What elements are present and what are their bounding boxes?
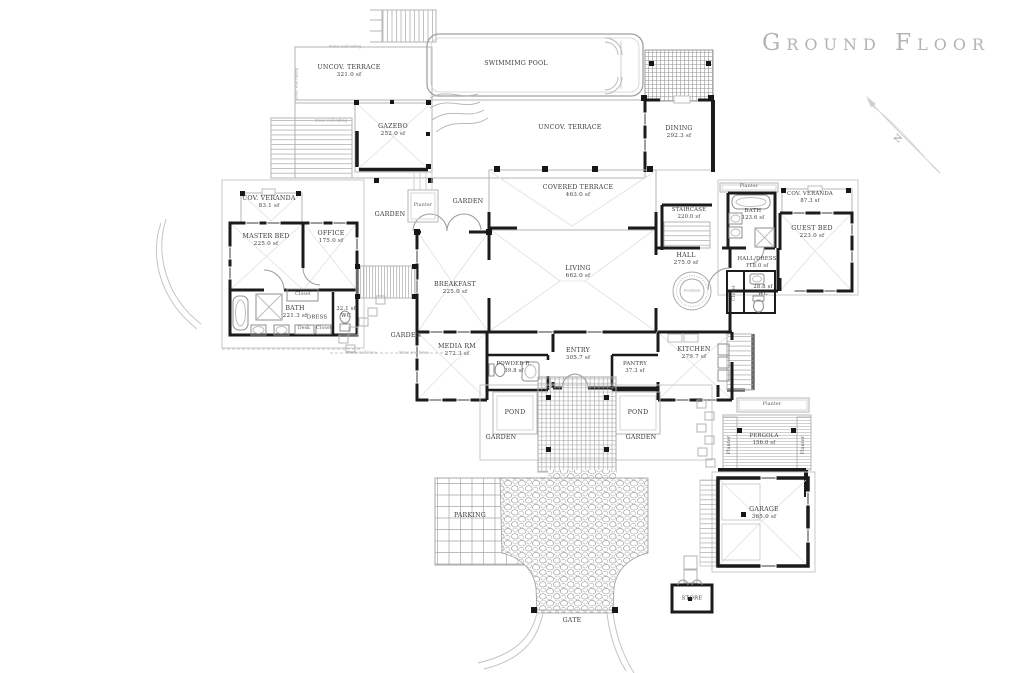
planter-label: Planter [801,436,807,454]
room-label-wc-left: WC32.1 sf [336,306,355,320]
room-label-office: OFFICE175.0 sf [317,230,344,246]
room-label-uncov-terrace-upper: UNCOV. TERRACE321.0 sf [317,64,380,80]
room-label-living: LIVING662.0 sf [565,265,590,281]
closet-label: Closet [295,292,311,298]
planter-label: Planter [740,184,758,190]
stone-wall-railing-label: Stone wall railing [329,45,361,50]
room-label-pantry: PANTRY37.3 sf [623,361,647,375]
north-compass-icon [866,96,940,173]
closet-label: Closet [316,326,332,332]
stone-wall-railing-label: Stone wall railing [295,68,300,100]
room-label-entry: ENTRY305.7 sf [566,347,591,363]
garden-label: GARDEN [453,198,484,206]
closet-label: Closet [732,285,738,301]
fountain-label: Fountain [684,289,700,294]
room-label-bath-left: BATH221.3 sf [283,305,308,321]
gate-label: GATE [563,617,582,625]
room-label-gazebo: GAZEBO252.0 sf [378,123,408,139]
room-label-master-bed: MASTER BED225.0 sf [242,233,289,249]
room-label-cov-veranda-left: COV. VERANDA83.1 sf [242,195,295,211]
driveway-parking [435,470,648,673]
room-label-breakfast: BREAKFAST225.0 sf [434,281,476,297]
room-label-staircase: STAIRCASE220.0 sf [672,207,707,221]
pond-label: POND [505,409,526,417]
stone-wall-fence-label: Stone wall fence [399,351,429,356]
garden-label: GARDEN [391,332,422,340]
garden-label: GARDEN [375,211,406,219]
room-label-media-rm: MEDIA RM272.3 sf [438,343,476,359]
stone-wall-railing-label: Stone wall railing [315,119,347,124]
room-label-uncov-terrace-center: UNCOV. TERRACE [538,124,601,132]
parking-label: PARKING [454,512,486,520]
planter-label: Planter [727,436,733,454]
room-label-bath-right: BATH123.6 sf [742,208,765,222]
pond-label: POND [628,409,649,417]
store-label: STORE [682,595,703,602]
room-label-hall-dress: HALL/DRESS118.0 sf [737,256,776,270]
room-label-wc-right: WC28.8 sf [753,284,772,298]
page-title: Ground Floor [762,30,990,56]
garden-label: GARDEN [486,434,517,442]
room-label-dining: DINING292.3 sf [665,125,692,141]
room-label-hall: HALL275.0 sf [674,252,699,268]
planter-label: Planter [763,402,781,408]
floor-plan-page: Ground Floor N UNCOV. TERRACE321.0 sf SW… [0,0,1024,673]
room-label-garage: GARAGE365.0 sf [749,506,779,522]
room-label-cov-veranda-right: COV. VERANDA87.3 sf [787,191,833,205]
garden-label: GARDEN [626,434,657,442]
desk-label: Desk [298,326,310,332]
garage-structure [700,472,815,572]
room-label-swimming-pool: SWIMMIMG POOL [484,60,547,68]
room-label-kitchen: KITCHEN279.7 sf [677,346,710,362]
room-label-powder: POWDER R.39.8 sf [496,361,531,375]
room-label-pergola: PERGOLA156.0 sf [749,433,778,447]
stone-wall-fence-label: Stone wall fence [347,351,377,356]
planter-label: Planter [414,203,432,209]
room-label-guest-bed: GUEST BED223.0 sf [791,225,833,241]
dress-label: DRESS [307,314,328,321]
room-label-covered-terrace: COVERED TERRACE463.0 sf [543,184,614,200]
floor-plan-drawing [0,0,1024,673]
